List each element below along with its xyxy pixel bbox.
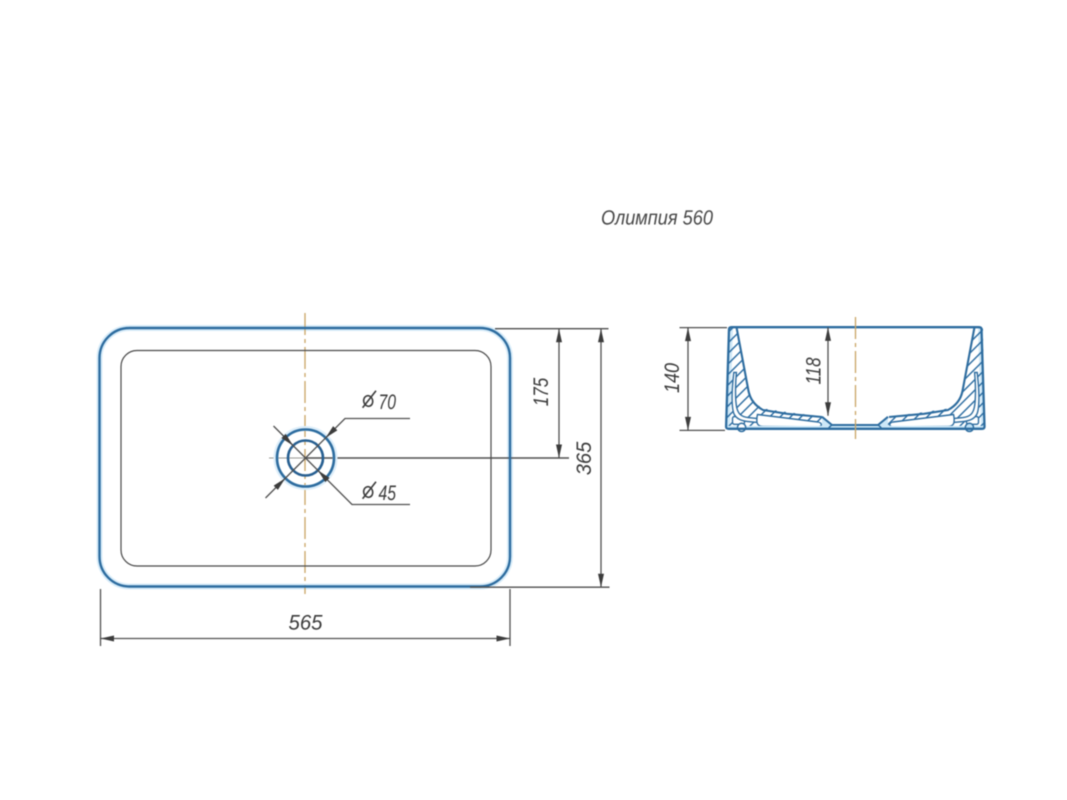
svg-text:45: 45 xyxy=(378,482,396,505)
svg-text:Олимпия 560: Олимпия 560 xyxy=(601,206,714,229)
svg-text:118: 118 xyxy=(803,357,826,384)
svg-text:365: 365 xyxy=(573,441,596,475)
svg-text:70: 70 xyxy=(378,391,396,414)
svg-text:565: 565 xyxy=(288,611,322,634)
svg-text:175: 175 xyxy=(530,377,553,406)
svg-text:140: 140 xyxy=(661,363,684,393)
